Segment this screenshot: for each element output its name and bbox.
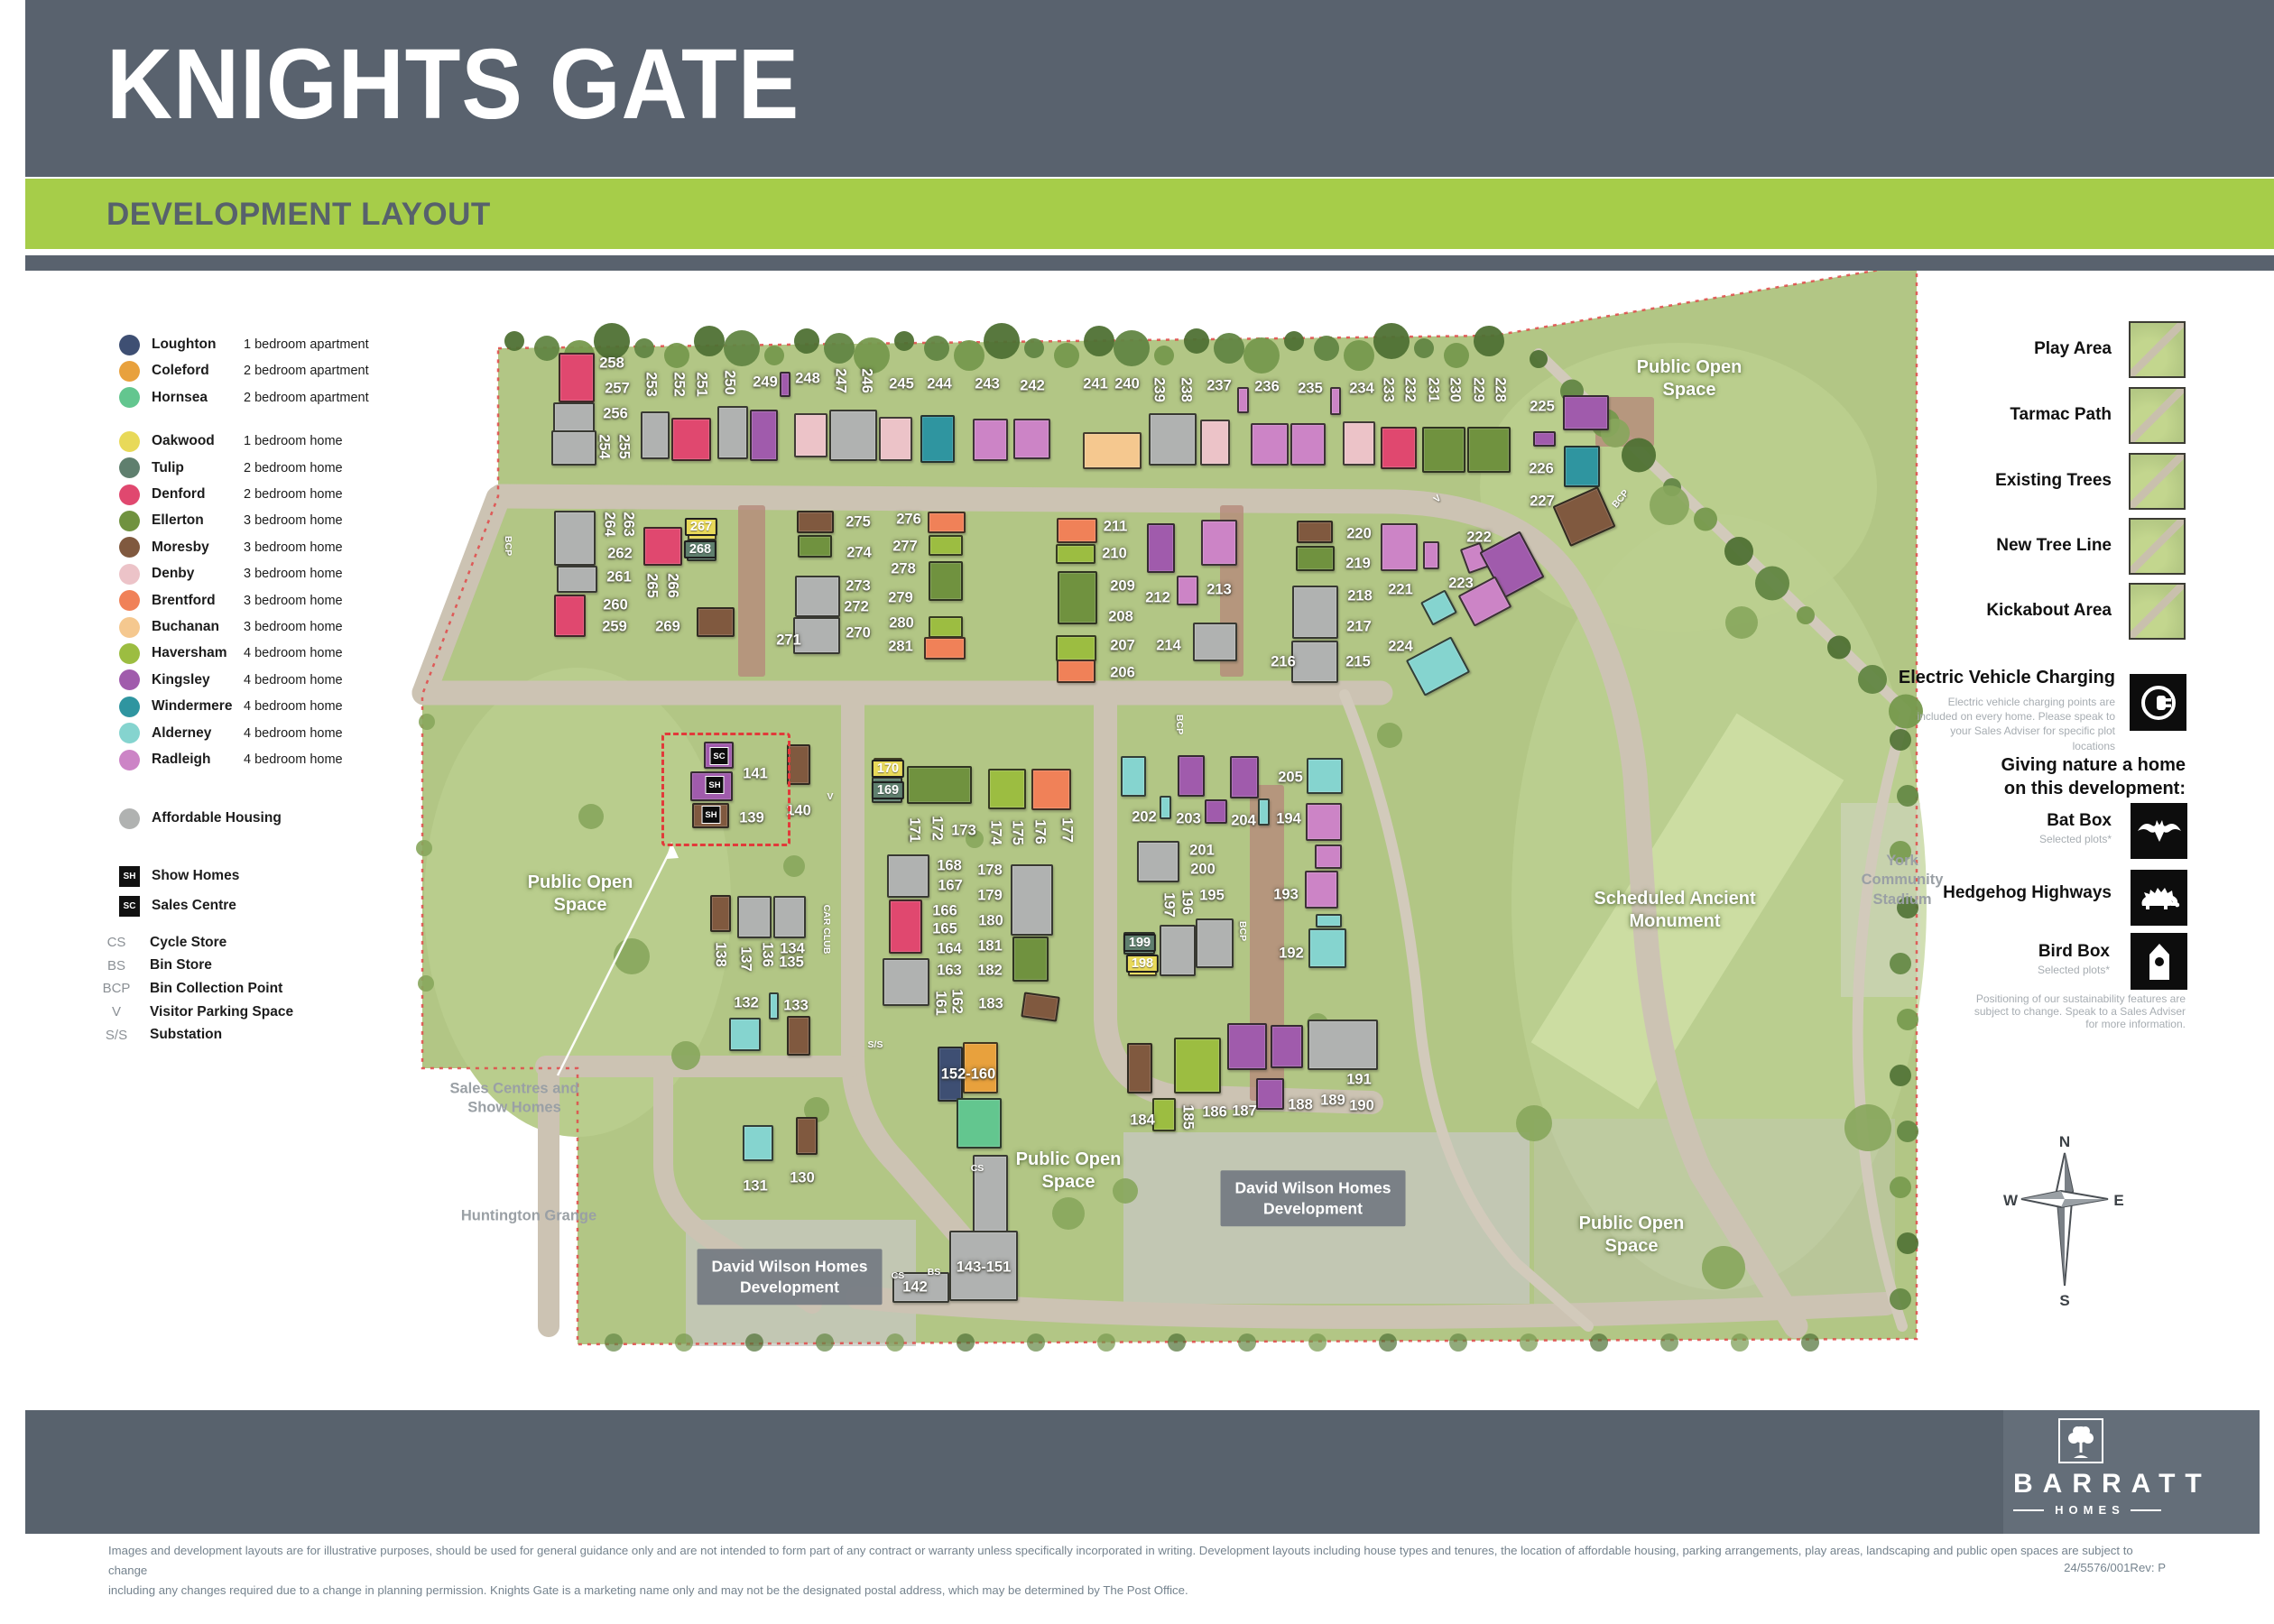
legend-row-haversham: Haversham4 bedroom home	[119, 640, 417, 667]
compass-south-label: S	[2059, 1292, 2069, 1310]
area-label: Public OpenSpace	[528, 872, 633, 917]
plot-label-226: 226	[1529, 461, 1554, 478]
house	[928, 512, 966, 533]
ev-charging-note: Electric vehicle charging points are inc…	[1908, 695, 2115, 753]
plot-label-279: 279	[888, 590, 913, 607]
plot-label-198: 198	[1126, 955, 1159, 973]
house	[1013, 419, 1050, 459]
plot-label-137: 137	[737, 946, 754, 972]
plot-label-270: 270	[846, 625, 871, 642]
tree-icon	[1284, 331, 1304, 351]
plot-label-220: 220	[1346, 526, 1372, 543]
plot-label-183: 183	[978, 996, 1003, 1013]
plot-label-169: 169	[872, 781, 904, 799]
plot-label-171: 171	[906, 817, 923, 843]
tree-icon	[1024, 338, 1044, 358]
compass-north-label: N	[2059, 1133, 2070, 1151]
plot-label-190: 190	[1349, 1098, 1374, 1115]
house	[641, 411, 670, 459]
side-legend-label-2: Existing Trees	[1922, 471, 2112, 491]
house	[1149, 413, 1197, 466]
side-legend-thumb-4	[2129, 583, 2186, 640]
house	[787, 1016, 810, 1056]
house	[1315, 844, 1342, 869]
house	[907, 766, 972, 804]
plot-label-275: 275	[846, 514, 871, 531]
house	[797, 511, 834, 533]
plot-label-236: 236	[1254, 379, 1280, 396]
plot-label-208: 208	[1108, 609, 1133, 626]
plot-label-135: 135	[779, 955, 804, 972]
plot-label-163: 163	[937, 963, 962, 980]
house-type-name: Ellerton	[152, 512, 204, 529]
plot-label-161: 161	[932, 991, 949, 1016]
tree-icon	[614, 938, 650, 974]
tree-icon	[418, 975, 434, 992]
tree-icon	[783, 855, 805, 877]
plot-label-142: 142	[902, 1279, 928, 1296]
plot-label-136: 136	[759, 942, 776, 967]
area-label-line: Public Open	[528, 872, 633, 894]
disclaimer-line1: Images and development layouts are for i…	[108, 1541, 2175, 1581]
area-label-line: Public Open	[1016, 1149, 1122, 1171]
house-type-desc: 3 bedroom home	[244, 594, 343, 608]
plot-label-197: 197	[1160, 892, 1178, 918]
house-type-name: Buchanan	[152, 619, 219, 635]
plot-label-230: 230	[1447, 377, 1464, 402]
house-type-swatch	[119, 564, 140, 585]
tree-icon	[1897, 1232, 1918, 1254]
tree-icon	[1724, 537, 1753, 566]
tree-icon	[1520, 1333, 1538, 1352]
house	[554, 595, 586, 637]
house	[737, 896, 772, 938]
affordable-swatch	[119, 808, 140, 829]
house-type-desc: 4 bedroom home	[244, 646, 343, 660]
house	[1308, 1020, 1378, 1070]
tree-icon	[1890, 953, 1911, 974]
plot-label-176: 176	[1031, 819, 1049, 844]
house	[1031, 769, 1071, 810]
house-type-desc: 2 bedroom home	[244, 487, 343, 502]
plot-label-239: 239	[1151, 377, 1168, 402]
tree-icon	[419, 714, 435, 730]
plot-label-243: 243	[975, 376, 1000, 393]
badge-label: Sales Centre	[152, 898, 236, 914]
house-type-name: Hornsea	[152, 390, 208, 406]
tree-icon	[1168, 1333, 1186, 1352]
house	[553, 402, 595, 432]
tree-icon	[794, 328, 819, 354]
plot-label-152-160: 152-160	[941, 1066, 996, 1084]
tree-icon	[1827, 636, 1851, 660]
plot-label-227: 227	[1530, 494, 1555, 511]
plot-label-207: 207	[1110, 638, 1135, 655]
house	[1196, 918, 1234, 968]
house-type-desc: 3 bedroom home	[244, 567, 343, 581]
tree-icon	[1694, 508, 1717, 531]
legend-row-windermere: Windermere4 bedroom home	[119, 693, 417, 720]
house	[795, 576, 840, 617]
code-abbrev: BS	[101, 958, 132, 973]
tree-icon	[1474, 326, 1504, 356]
house	[798, 535, 832, 558]
house	[1230, 756, 1259, 798]
house	[1177, 576, 1198, 605]
plot-label-253: 253	[642, 372, 660, 397]
bird-box-sub: Selected plots*	[1929, 963, 2110, 977]
plot-label-257: 257	[605, 381, 630, 398]
house-type-desc: 3 bedroom home	[244, 513, 343, 528]
wordmark-line-right	[2131, 1509, 2161, 1511]
development-layout-page: { "header": { "title": "KNIGHTS GATE", "…	[0, 0, 2274, 1619]
plot-label-267: 267	[685, 518, 717, 536]
house	[559, 353, 595, 402]
plot-label-181: 181	[977, 938, 1003, 955]
plot-label-188: 188	[1288, 1097, 1313, 1114]
nature-title-line1: Giving nature a home	[1951, 753, 2186, 777]
area-label: Public OpenSpace	[1579, 1213, 1685, 1258]
tree-icon	[1897, 1121, 1918, 1142]
bat-icon	[2131, 803, 2187, 859]
plot-label-246: 246	[858, 368, 875, 393]
area-label-line: Public Open	[1637, 356, 1742, 379]
code-abbrev: BCP	[101, 981, 132, 996]
plot-label-249: 249	[753, 374, 778, 392]
tree-icon	[1308, 1333, 1326, 1352]
tree-icon	[1084, 326, 1114, 356]
tree-icon	[1054, 343, 1079, 368]
barratt-homes-wordmark: HOMES	[2003, 1503, 2171, 1517]
plot-label-204: 204	[1231, 813, 1256, 830]
page-title: KNIGHTS GATE	[106, 27, 800, 142]
plot-label-228: 228	[1492, 377, 1509, 402]
plot-label-251: 251	[693, 372, 710, 397]
house-type-name: Loughton	[152, 337, 216, 353]
legend-code-bs: BSBin Store	[106, 955, 404, 977]
side-legend-label-3: New Tree Line	[1922, 536, 2112, 556]
house-type-name: Tulip	[152, 460, 184, 476]
legend-code-v: VVisitor Parking Space	[106, 1001, 404, 1023]
plot-label-224: 224	[1388, 639, 1413, 656]
plot-label-261: 261	[606, 569, 632, 586]
plot-label-130: 130	[790, 1170, 815, 1187]
legend-row-denford: Denford2 bedroom home	[119, 481, 417, 508]
area-label-line: Public Open	[1579, 1213, 1685, 1235]
plot-label-185: 185	[1179, 1104, 1197, 1130]
house	[1237, 387, 1249, 413]
code-abbrev: S/S	[101, 1028, 132, 1043]
house-type-swatch	[119, 590, 140, 611]
plot-label-132: 132	[734, 995, 759, 1012]
tree-icon	[416, 840, 432, 856]
house-type-name: Denford	[152, 486, 205, 503]
house	[889, 900, 922, 954]
house-type-swatch	[119, 537, 140, 558]
house	[883, 958, 929, 1006]
house	[957, 1098, 1002, 1149]
plot-label-201: 201	[1189, 843, 1215, 860]
plot-label-203: 203	[1176, 811, 1201, 828]
area-label: David Wilson HomesDevelopment	[1221, 1170, 1406, 1226]
tree-icon	[745, 1333, 763, 1352]
house	[1291, 641, 1338, 683]
plot-label-223: 223	[1448, 576, 1474, 593]
badge-sc-icon: SC	[119, 896, 140, 917]
side-legend-label-4: Kickabout Area	[1922, 601, 2112, 621]
house	[1271, 1025, 1303, 1068]
house	[929, 616, 963, 638]
house	[829, 410, 877, 461]
document-reference: 24/5576/001Rev: P	[1976, 1561, 2166, 1574]
plot-label-195: 195	[1199, 888, 1225, 905]
legend-row-kingsley: Kingsley4 bedroom home	[119, 667, 417, 694]
tree-icon	[954, 340, 984, 371]
plot-label-143-151: 143-151	[957, 1260, 1012, 1277]
house	[780, 372, 790, 397]
legend-row-moresby: Moresby3 bedroom home	[119, 534, 417, 561]
plot-label-170: 170	[872, 760, 904, 778]
house	[1083, 432, 1142, 469]
tree-icon	[1243, 337, 1280, 374]
plot-label-240: 240	[1114, 376, 1140, 393]
divider-strip	[25, 255, 2274, 271]
house	[1296, 546, 1335, 571]
legend-row-hornsea: Hornsea2 bedroom apartment	[119, 384, 417, 411]
road-label-v: V	[827, 791, 833, 802]
plot-label-254: 254	[596, 434, 613, 459]
house	[710, 895, 731, 932]
house	[1127, 1043, 1152, 1093]
map-badge-sh: SH	[706, 776, 725, 794]
tree-icon	[1414, 338, 1434, 358]
badge-label: Show Homes	[152, 868, 239, 884]
tree-icon	[1238, 1333, 1256, 1352]
plot-label-205: 205	[1278, 770, 1303, 787]
house	[988, 769, 1026, 809]
house	[1057, 660, 1095, 683]
plot-label-193: 193	[1273, 887, 1299, 904]
house	[643, 527, 682, 566]
tree-icon	[984, 323, 1020, 359]
plot-label-189: 189	[1320, 1093, 1345, 1110]
house	[1533, 431, 1556, 447]
house	[1422, 427, 1465, 473]
house	[1308, 928, 1346, 968]
house	[929, 535, 963, 556]
nature-title-line2: on this development:	[1951, 777, 2186, 800]
house	[1330, 387, 1341, 415]
code-label: Bin Collection Point	[150, 981, 282, 997]
hedgehog-highways-label: Hedgehog Highways	[1922, 883, 2112, 903]
plot-label-184: 184	[1130, 1112, 1155, 1130]
house	[1564, 446, 1600, 487]
plot-label-280: 280	[889, 615, 914, 632]
house-type-swatch	[119, 361, 140, 382]
plot-label-229: 229	[1470, 377, 1487, 402]
plot-label-217: 217	[1346, 619, 1372, 636]
plot-label-162: 162	[948, 989, 966, 1014]
legend-row-radleigh: Radleigh4 bedroom home	[119, 746, 417, 773]
house	[920, 415, 955, 463]
tree-icon	[1801, 1333, 1819, 1352]
house	[1174, 1038, 1221, 1093]
house	[1343, 421, 1375, 466]
tree-icon	[1214, 333, 1244, 364]
plot-label-214: 214	[1156, 638, 1181, 655]
road-label-ss: S/S	[868, 1039, 883, 1050]
code-label: Substation	[150, 1027, 222, 1043]
area-label-line: Huntington Grange	[461, 1206, 596, 1225]
house	[729, 1018, 761, 1051]
legend-row-tulip: Tulip2 bedroom home	[119, 455, 417, 482]
plot-label-133: 133	[783, 998, 809, 1015]
tree-icon	[1890, 1176, 1911, 1198]
house	[1381, 427, 1417, 469]
house-type-name: Denby	[152, 566, 194, 582]
plot-label-164: 164	[937, 941, 962, 958]
legend-row-affordable: Affordable Housing	[119, 805, 417, 832]
plot-label-266: 266	[664, 573, 681, 598]
house	[1205, 799, 1227, 824]
plot-label-213: 213	[1206, 582, 1232, 599]
plot-label-221: 221	[1388, 582, 1413, 599]
area-label-line: Scheduled Ancient	[1594, 888, 1755, 910]
legend-code-bcp: BCPBin Collection Point	[106, 977, 404, 1000]
compass-rose	[2021, 1153, 2108, 1286]
tree-icon	[1897, 1009, 1918, 1030]
house	[924, 637, 966, 660]
area-label-line: Space	[1579, 1235, 1685, 1258]
house-type-name: Haversham	[152, 645, 227, 661]
house	[929, 561, 963, 601]
plot-label-271: 271	[776, 632, 801, 650]
plot-label-235: 235	[1298, 381, 1323, 398]
tree-icon	[1755, 567, 1789, 601]
area-label-line: Community	[1862, 871, 1944, 890]
plot-label-167: 167	[938, 878, 963, 895]
house-type-desc: 2 bedroom apartment	[244, 391, 369, 405]
plot-label-252: 252	[670, 372, 688, 397]
side-legend-label-1: Tarmac Path	[1922, 405, 2112, 425]
house	[1306, 803, 1342, 841]
disclaimer-line2: including any changes required due to a …	[108, 1581, 2175, 1601]
plot-label-175: 175	[1009, 820, 1026, 845]
plot-label-210: 210	[1102, 546, 1127, 563]
area-label: David Wilson HomesDevelopment	[698, 1249, 883, 1305]
hedgehog-icon	[2131, 870, 2187, 926]
plot-label-166: 166	[932, 903, 957, 920]
map-badge-sc: SC	[710, 747, 729, 765]
area-label: Public OpenSpace	[1016, 1149, 1122, 1194]
plot-label-281: 281	[888, 639, 913, 656]
house	[1381, 523, 1418, 571]
area-label-line: Show Homes	[449, 1099, 578, 1118]
plot-label-200: 200	[1190, 862, 1216, 879]
legend-row-brentford: Brentford3 bedroom home	[119, 587, 417, 614]
area-label-line: Development	[1235, 1198, 1391, 1219]
house-type-swatch	[119, 723, 140, 743]
house	[717, 406, 748, 459]
house-type-swatch	[119, 750, 140, 770]
house-type-swatch	[119, 697, 140, 717]
footer-band	[25, 1410, 2260, 1534]
plot-label-274: 274	[846, 545, 872, 562]
plot-label-241: 241	[1083, 376, 1108, 393]
plot-label-256: 256	[603, 406, 628, 423]
house	[743, 1125, 773, 1161]
homes-text: HOMES	[2049, 1503, 2125, 1517]
house	[1021, 992, 1060, 1021]
plot-label-232: 232	[1401, 377, 1419, 402]
plot-label-206: 206	[1110, 665, 1135, 682]
plot-label-237: 237	[1206, 378, 1232, 395]
house	[1467, 427, 1511, 473]
house	[1178, 755, 1205, 797]
area-label: YorkCommunityStadium	[1862, 852, 1944, 909]
bat-box-label: Bat Box	[1922, 811, 2112, 831]
house-type-name: Kingsley	[152, 672, 210, 688]
house-type-name: Moresby	[152, 540, 209, 556]
bird-box-label: Bird Box	[1920, 942, 2110, 962]
road-label-cs: CS	[892, 1270, 905, 1281]
plot-label-258: 258	[599, 355, 624, 373]
tree-icon	[1379, 1333, 1397, 1352]
tree-icon	[1897, 785, 1918, 807]
tree-icon	[1184, 328, 1209, 354]
plot-label-244: 244	[927, 376, 952, 393]
house	[697, 607, 735, 637]
plot-label-238: 238	[1178, 377, 1195, 402]
plot-label-172: 172	[929, 816, 946, 841]
tree-icon	[924, 336, 949, 361]
ev-charging-icon	[2130, 674, 2186, 731]
plot-label-165: 165	[932, 921, 957, 938]
plot-label-187: 187	[1232, 1103, 1257, 1121]
legend-row-denby: Denby3 bedroom home	[119, 560, 417, 587]
nature-section-title: Giving nature a home on this development…	[1951, 753, 2186, 800]
plot-label-245: 245	[889, 376, 914, 393]
plot-label-242: 242	[1020, 378, 1045, 395]
house-type-desc: 1 bedroom home	[244, 434, 343, 448]
tree-icon	[578, 804, 604, 829]
house	[1201, 520, 1237, 566]
tree-icon	[824, 333, 855, 364]
tree-icon	[1516, 1105, 1552, 1141]
house-type-desc: 3 bedroom home	[244, 540, 343, 555]
tree-icon	[594, 323, 630, 359]
plot-label-231: 231	[1425, 377, 1442, 402]
house	[1012, 937, 1049, 982]
plot-label-268: 268	[684, 540, 716, 558]
house-type-swatch	[119, 617, 140, 638]
house	[1011, 864, 1053, 936]
side-legend-label-0: Play Area	[1922, 339, 2112, 359]
tree-icon	[675, 1333, 693, 1352]
house	[671, 418, 711, 461]
tree-icon	[1890, 1288, 1911, 1310]
tree-icon	[504, 331, 524, 351]
plot-label-276: 276	[896, 512, 921, 529]
house	[1297, 521, 1333, 543]
affordable-label: Affordable Housing	[152, 810, 282, 826]
area-label-line: Sales Centres and	[449, 1080, 578, 1099]
plot-label-168: 168	[937, 858, 962, 875]
tree-icon	[1731, 1333, 1749, 1352]
tree-icon	[1097, 1333, 1115, 1352]
house-type-name: Brentford	[152, 593, 216, 609]
legend-code-ss: S/SSubstation	[106, 1024, 404, 1047]
